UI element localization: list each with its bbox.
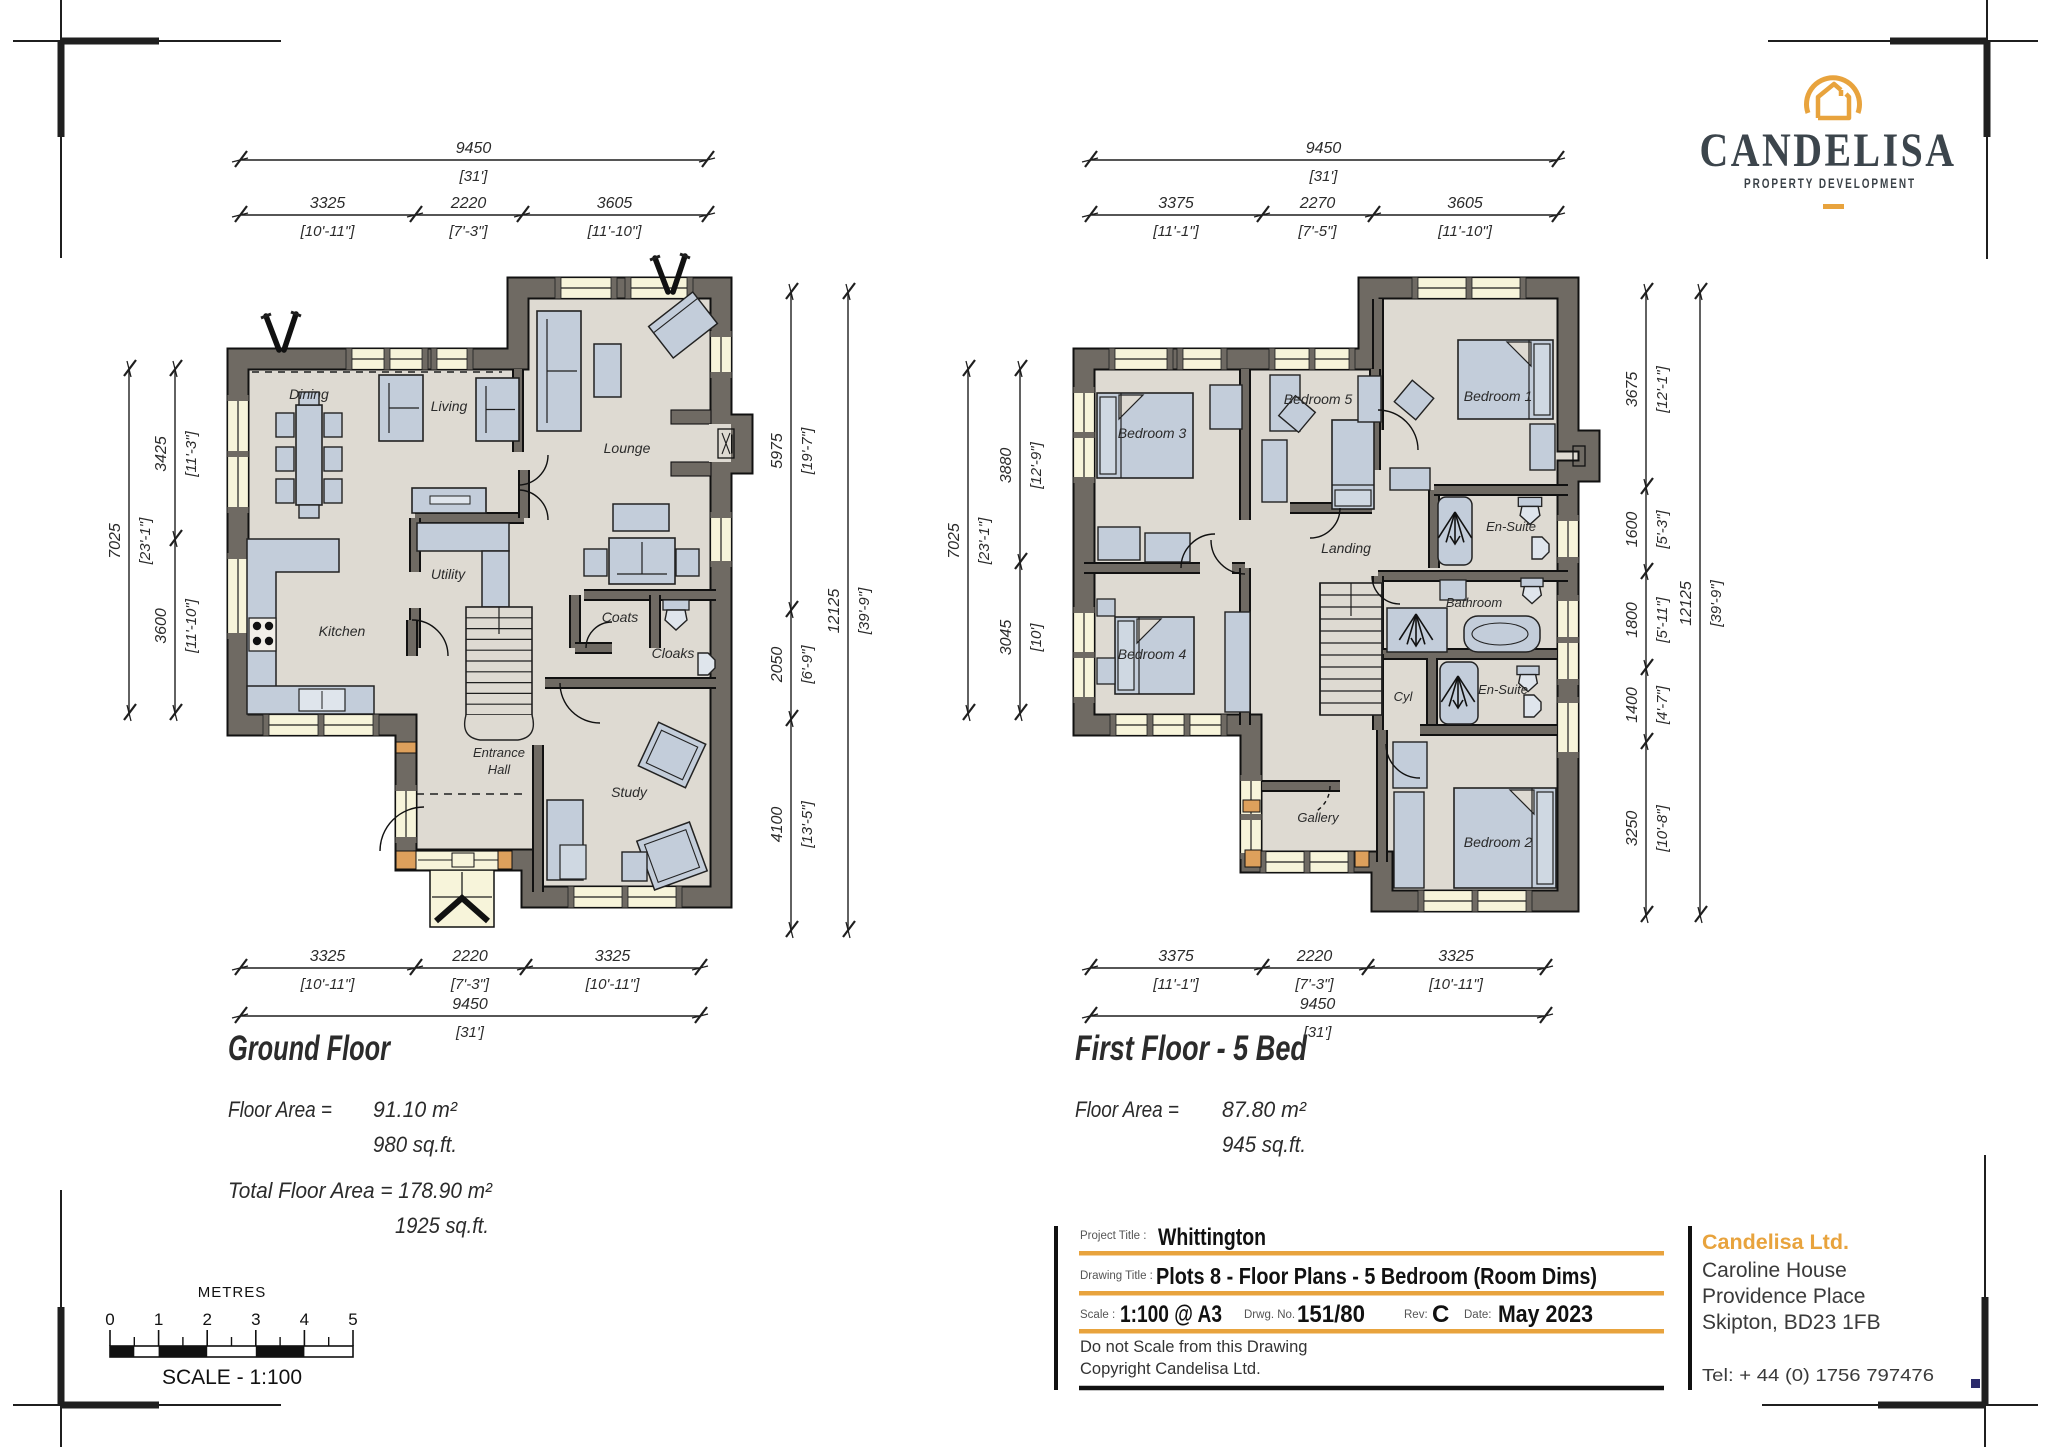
svg-text:[39'-9"]: [39'-9"] [856, 587, 873, 635]
svg-text:12125: 12125 [1678, 581, 1695, 626]
svg-text:4100: 4100 [769, 807, 786, 843]
svg-text:Coats: Coats [602, 609, 639, 625]
svg-text:1400: 1400 [1624, 687, 1641, 723]
svg-text:1:100 @ A3: 1:100 @ A3 [1120, 1301, 1222, 1328]
svg-text:Whittington: Whittington [1158, 1224, 1266, 1251]
svg-text:Bedroom 2: Bedroom 2 [1464, 834, 1533, 850]
svg-text:1925 sq.ft.: 1925 sq.ft. [395, 1213, 489, 1238]
svg-text:Tel: + 44 (0) 1756 797476: Tel: + 44 (0) 1756 797476 [1702, 1365, 1934, 1385]
svg-text:[11'-3"]: [11'-3"] [183, 430, 200, 477]
svg-text:87.80 m²: 87.80 m² [1222, 1097, 1307, 1122]
svg-text:91.10 m²: 91.10 m² [373, 1097, 458, 1122]
svg-text:[13'-5"]: [13'-5"] [799, 800, 816, 848]
svg-text:3605: 3605 [597, 195, 633, 212]
svg-text:Bedroom 5: Bedroom 5 [1284, 391, 1353, 407]
svg-text:[11'-1"]: [11'-1"] [1152, 223, 1199, 240]
svg-text:Drawing Title :: Drawing Title : [1080, 1270, 1153, 1282]
svg-text:[12'-1"]: [12'-1"] [1654, 365, 1671, 413]
svg-text:9450: 9450 [456, 140, 492, 157]
svg-text:3250: 3250 [1624, 811, 1641, 847]
svg-text:2: 2 [202, 1310, 211, 1329]
svg-text:Bedroom 4: Bedroom 4 [1118, 646, 1187, 662]
svg-text:7025: 7025 [946, 523, 963, 559]
svg-text:PROPERTY DEVELOPMENT: PROPERTY DEVELOPMENT [1744, 176, 1916, 191]
svg-text:3: 3 [251, 1310, 260, 1329]
svg-text:[10'-11"]: [10'-11"] [300, 976, 356, 993]
svg-text:Lounge: Lounge [604, 440, 651, 456]
svg-text:Bathroom: Bathroom [1446, 595, 1503, 610]
svg-text:Drwg. No.: Drwg. No. [1244, 1309, 1295, 1321]
svg-text:4: 4 [300, 1310, 309, 1329]
svg-text:[7'-5"]: [7'-5"] [1297, 223, 1337, 240]
svg-text:Floor Area =: Floor Area = [1075, 1097, 1179, 1122]
svg-text:SCALE - 1:100: SCALE - 1:100 [162, 1366, 302, 1389]
svg-text:[39'-9"]: [39'-9"] [1708, 579, 1725, 627]
svg-text:3325: 3325 [595, 948, 631, 965]
svg-text:5975: 5975 [769, 433, 786, 469]
svg-text:151/80: 151/80 [1297, 1301, 1365, 1328]
svg-text:[5'-3"]: [5'-3"] [1654, 510, 1671, 550]
svg-text:Floor Area =: Floor Area = [228, 1097, 332, 1122]
svg-text:CANDELISA: CANDELISA [1700, 124, 1957, 177]
svg-text:[12'-9"]: [12'-9"] [1028, 441, 1045, 489]
svg-text:9450: 9450 [452, 996, 488, 1013]
svg-text:[23'-1"]: [23'-1"] [137, 517, 154, 565]
svg-text:[11'-1"]: [11'-1"] [1152, 976, 1199, 993]
svg-text:[19'-7"]: [19'-7"] [799, 427, 816, 475]
svg-text:3325: 3325 [310, 948, 346, 965]
svg-text:1: 1 [154, 1310, 163, 1329]
svg-text:Plots 8 - Floor Plans - 5 Bed: Plots 8 - Floor Plans - 5 Bedroom (Room … [1156, 1263, 1597, 1289]
svg-text:[11'-10"]: [11'-10"] [587, 223, 643, 240]
svg-text:Candelisa Ltd.: Candelisa Ltd. [1702, 1230, 1849, 1254]
svg-text:1800: 1800 [1624, 602, 1641, 638]
svg-text:En-Suite: En-Suite [1486, 519, 1536, 534]
svg-text:[31']: [31'] [1309, 168, 1339, 185]
svg-text:Bedroom 3: Bedroom 3 [1118, 425, 1187, 441]
svg-text:[31']: [31'] [1303, 1024, 1333, 1041]
svg-text:Total Floor Area = 178.90 m²: Total Floor Area = 178.90 m² [228, 1178, 493, 1203]
svg-text:[31']: [31'] [455, 1024, 485, 1041]
svg-text:Cloaks: Cloaks [652, 645, 695, 661]
svg-text:[7'-3"]: [7'-3"] [450, 976, 490, 993]
svg-text:3045: 3045 [998, 620, 1015, 656]
svg-text:Kitchen: Kitchen [319, 623, 366, 639]
svg-text:Project Title :: Project Title : [1080, 1230, 1146, 1242]
svg-text:First Floor - 5 Bed: First Floor - 5 Bed [1075, 1029, 1307, 1068]
svg-text:[10'-11"]: [10'-11"] [585, 976, 641, 993]
svg-text:0: 0 [105, 1310, 114, 1329]
svg-text:2220: 2220 [1296, 948, 1333, 965]
svg-text:[4'-7"]: [4'-7"] [1654, 685, 1671, 725]
svg-text:METRES: METRES [198, 1284, 267, 1301]
svg-text:3375: 3375 [1158, 195, 1194, 212]
svg-text:12125: 12125 [826, 589, 843, 634]
svg-text:[7'-3"]: [7'-3"] [448, 223, 488, 240]
svg-text:Skipton, BD23 1FB: Skipton, BD23 1FB [1702, 1311, 1881, 1334]
svg-text:3675: 3675 [1624, 372, 1641, 408]
svg-text:3605: 3605 [1447, 195, 1483, 212]
svg-text:9450: 9450 [1306, 140, 1342, 157]
svg-text:Copyright Candelisa Ltd.: Copyright Candelisa Ltd. [1080, 1360, 1261, 1378]
svg-text:[31']: [31'] [459, 168, 489, 185]
svg-text:Gallery: Gallery [1297, 810, 1340, 825]
svg-text:2050: 2050 [769, 647, 786, 684]
svg-text:Do not Scale from this Drawing: Do not Scale from this Drawing [1080, 1338, 1307, 1356]
svg-text:2220: 2220 [450, 195, 487, 212]
svg-text:9450: 9450 [1300, 996, 1336, 1013]
svg-text:Entrance: Entrance [473, 745, 525, 760]
svg-text:1600: 1600 [1624, 512, 1641, 548]
svg-text:3325: 3325 [1438, 948, 1474, 965]
svg-text:[11'-10"]: [11'-10"] [183, 598, 200, 654]
svg-text:Study: Study [611, 784, 648, 800]
svg-text:Scale :: Scale : [1080, 1309, 1115, 1321]
svg-text:[10'-11"]: [10'-11"] [1428, 976, 1484, 993]
svg-text:[11'-10"]: [11'-10"] [1437, 223, 1493, 240]
svg-text:3375: 3375 [1158, 948, 1194, 965]
svg-text:Bedroom 1: Bedroom 1 [1464, 388, 1532, 404]
svg-text:[10'-11"]: [10'-11"] [300, 223, 356, 240]
svg-text:En-Suite: En-Suite [1478, 682, 1528, 697]
svg-text:3425: 3425 [153, 436, 170, 472]
svg-text:[5'-11"]: [5'-11"] [1654, 596, 1671, 643]
svg-text:[10']: [10'] [1028, 623, 1045, 653]
svg-text:3600: 3600 [153, 608, 170, 644]
svg-text:C: C [1432, 1301, 1449, 1328]
svg-text:Living: Living [431, 398, 468, 414]
svg-text:Rev:: Rev: [1404, 1309, 1428, 1321]
svg-text:980 sq.ft.: 980 sq.ft. [373, 1132, 457, 1157]
svg-text:Providence Place: Providence Place [1702, 1285, 1865, 1308]
svg-text:5: 5 [348, 1310, 357, 1329]
svg-text:Cyl: Cyl [1394, 689, 1414, 704]
svg-text:Dining: Dining [289, 386, 329, 402]
svg-text:3325: 3325 [310, 195, 346, 212]
svg-text:2270: 2270 [1299, 195, 1336, 212]
svg-text:Utility: Utility [431, 566, 466, 582]
svg-text:[7'-3"]: [7'-3"] [1294, 976, 1334, 993]
svg-text:Hall: Hall [488, 762, 512, 777]
svg-text:3880: 3880 [998, 448, 1015, 484]
svg-text:[6'-9"]: [6'-9"] [799, 645, 816, 685]
svg-text:Caroline House: Caroline House [1702, 1259, 1847, 1282]
svg-text:Landing: Landing [1321, 540, 1371, 556]
svg-text:[23'-1"]: [23'-1"] [976, 517, 993, 565]
svg-text:[10'-8"]: [10'-8"] [1654, 804, 1671, 852]
svg-text:May 2023: May 2023 [1498, 1301, 1593, 1328]
svg-text:2220: 2220 [451, 948, 488, 965]
svg-text:Date:: Date: [1464, 1309, 1492, 1321]
svg-text:945 sq.ft.: 945 sq.ft. [1222, 1132, 1306, 1157]
svg-text:7025: 7025 [107, 523, 124, 559]
svg-text:Ground Floor: Ground Floor [228, 1029, 392, 1068]
